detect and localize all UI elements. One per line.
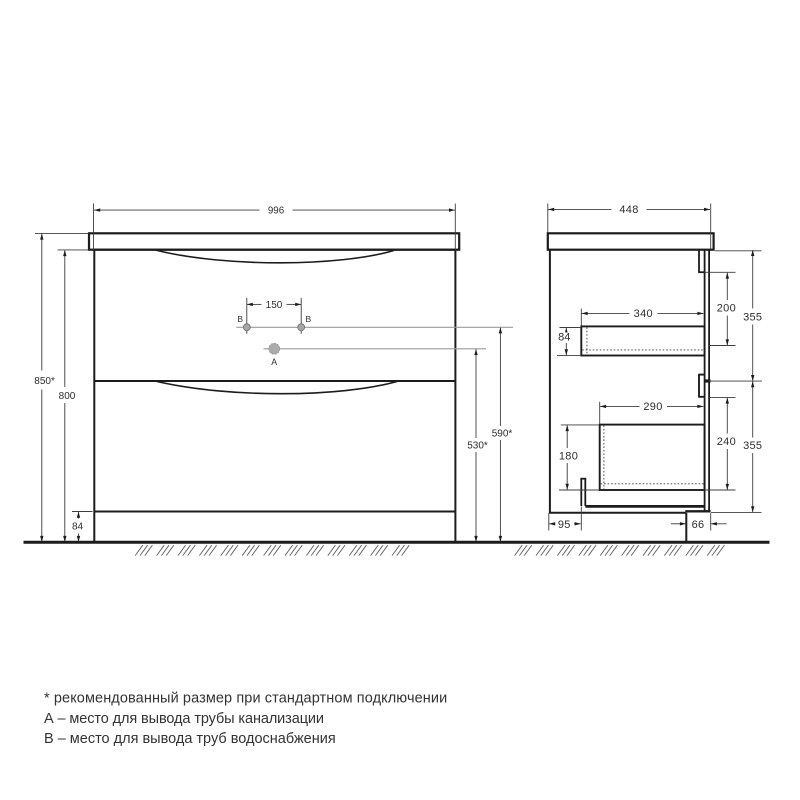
svg-text:530*: 530* [467,441,488,452]
svg-text:996: 996 [268,206,285,217]
svg-text:В – место для вывода труб водо: В – место для вывода труб водоснабжения [44,731,336,747]
svg-text:66: 66 [692,519,705,531]
svg-text:240: 240 [717,436,736,448]
svg-text:95: 95 [558,519,571,531]
svg-text:448: 448 [619,204,638,216]
svg-text:850*: 850* [34,376,55,387]
svg-text:84: 84 [558,331,570,343]
svg-text:A: A [271,357,277,367]
svg-text:B: B [305,314,311,324]
svg-text:* рекомендованный размер при с: * рекомендованный размер при стандартном… [44,690,447,706]
svg-text:355: 355 [743,312,762,324]
svg-text:290: 290 [643,401,662,413]
svg-text:590*: 590* [492,429,513,440]
svg-text:355: 355 [743,440,762,452]
svg-text:150: 150 [266,300,283,311]
svg-text:340: 340 [634,308,653,320]
svg-text:800: 800 [59,391,76,402]
svg-text:А – место для вывода трубы кан: А – место для вывода трубы канализации [44,711,324,727]
svg-text:B: B [237,314,243,324]
svg-text:84: 84 [72,522,84,533]
svg-text:180: 180 [559,451,578,463]
svg-text:200: 200 [717,303,736,315]
